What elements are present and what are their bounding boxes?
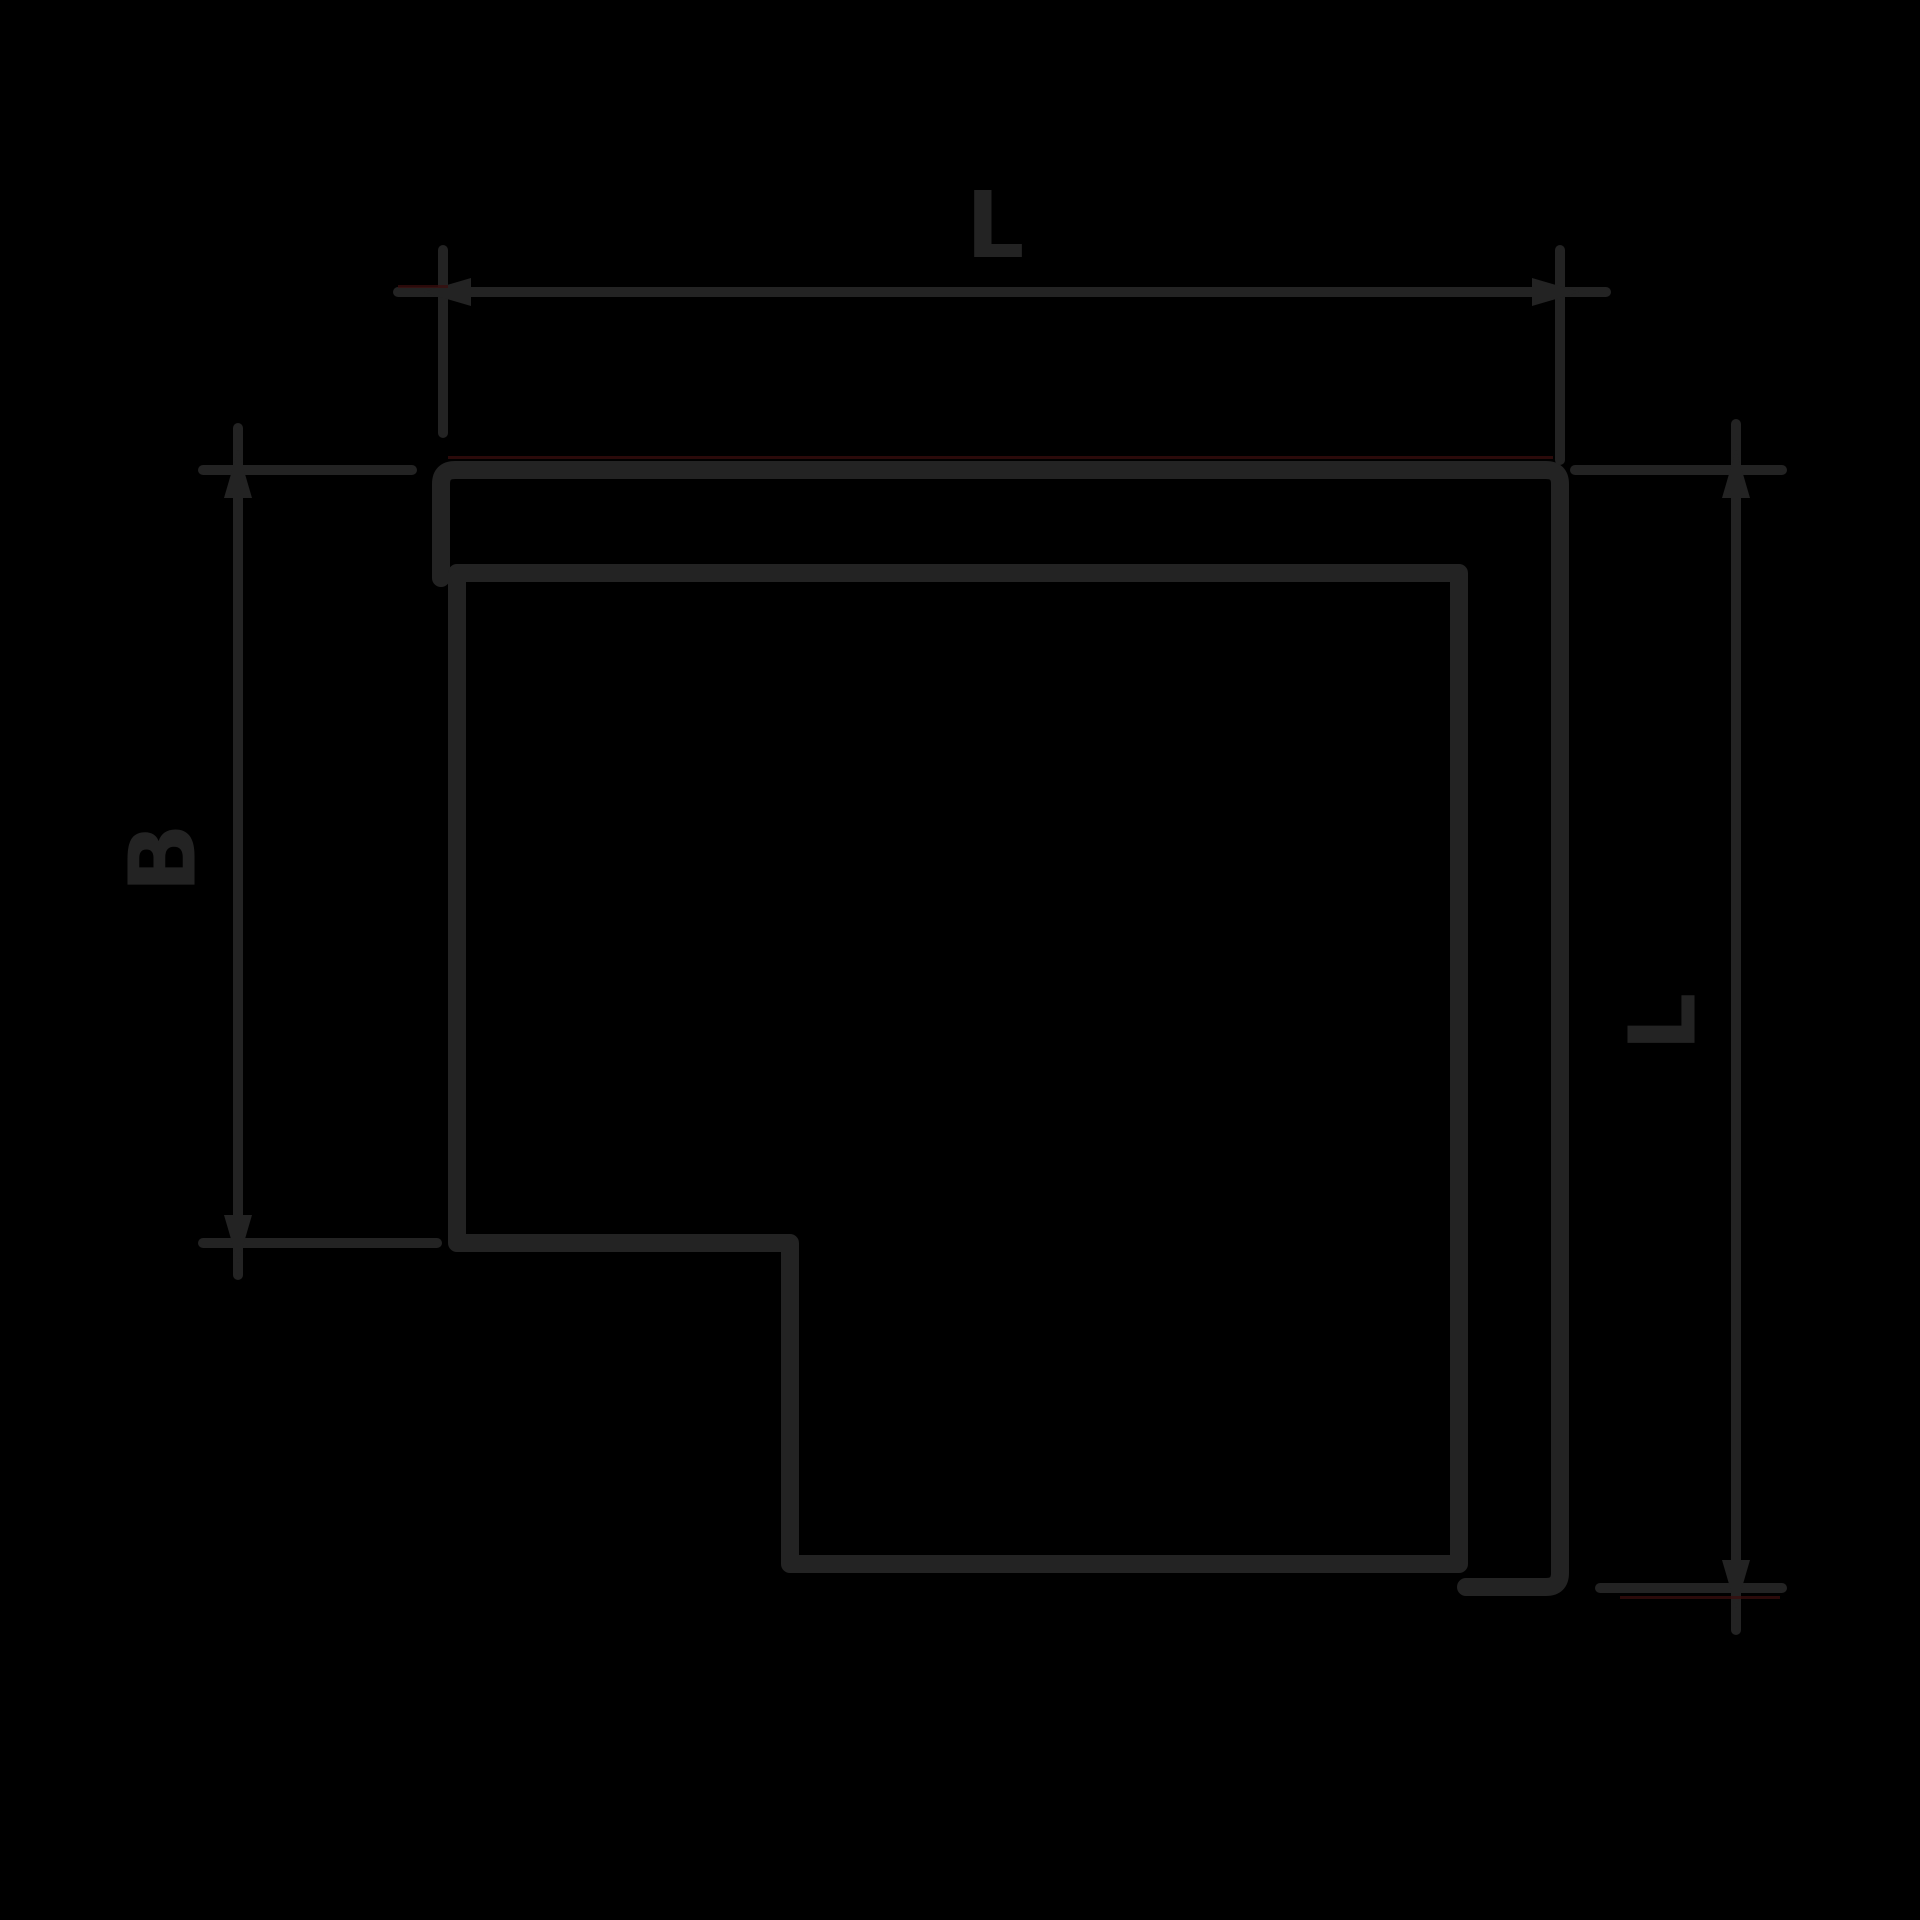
dimension-drawing: L B L — [0, 0, 1920, 1920]
dimension-right: L — [1575, 424, 1782, 1630]
drawing-canvas: L B L — [0, 0, 1920, 1920]
body-outline — [457, 573, 1459, 1564]
dimension-top: L — [398, 172, 1606, 460]
red-artifact-hairline-dim-top — [398, 285, 448, 288]
dimension-label-right: L — [1610, 993, 1717, 1052]
dimension-left: B — [110, 428, 438, 1275]
dimension-label-left: B — [110, 823, 217, 893]
dimension-label-top: L — [966, 172, 1025, 279]
corner-piece — [441, 456, 1560, 1587]
cover-outline — [441, 470, 1560, 1587]
red-artifact-hairline-cover-top — [448, 456, 1553, 459]
red-artifact-hairline-ext-right-bottom — [1620, 1596, 1780, 1599]
